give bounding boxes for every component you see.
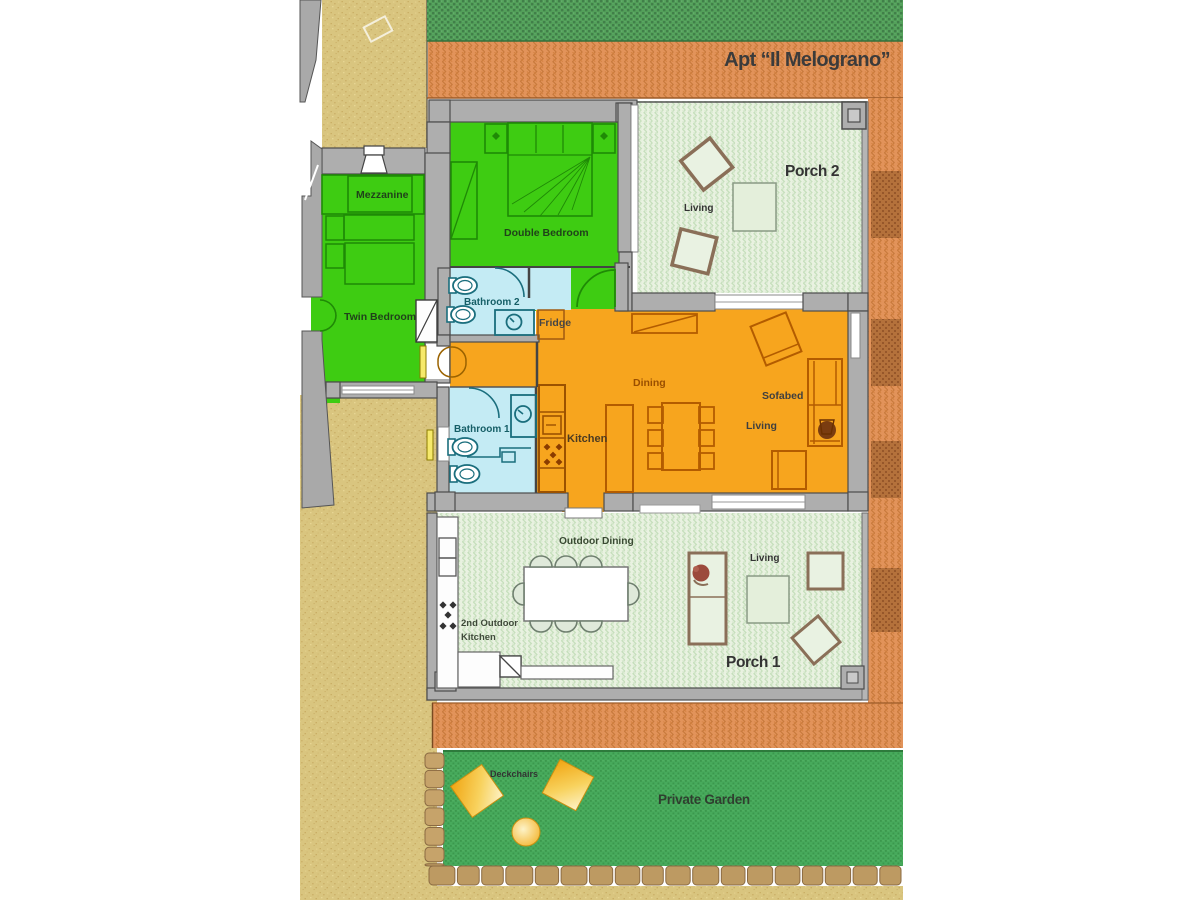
- svg-text:Twin Bedroom: Twin Bedroom: [344, 311, 416, 323]
- svg-text:Apt “Il Melograno”: Apt “Il Melograno”: [724, 49, 890, 71]
- svg-text:Sofabed: Sofabed: [762, 390, 803, 402]
- svg-text:Double Bedroom: Double Bedroom: [504, 227, 589, 239]
- svg-text:Dining: Dining: [633, 377, 666, 389]
- svg-text:Mezzanine: Mezzanine: [356, 189, 409, 201]
- svg-text:2nd Outdoor: 2nd Outdoor: [461, 618, 518, 629]
- svg-text:Living: Living: [750, 553, 779, 564]
- svg-text:Living: Living: [746, 420, 777, 432]
- svg-text:Living: Living: [684, 203, 713, 214]
- svg-text:Fridge: Fridge: [539, 317, 571, 329]
- svg-text:Bathroom 1: Bathroom 1: [454, 424, 510, 435]
- svg-text:Porch 1: Porch 1: [726, 654, 781, 671]
- svg-text:Kitchen: Kitchen: [461, 632, 496, 643]
- svg-text:Private Garden: Private Garden: [658, 792, 750, 807]
- svg-text:Deckchairs: Deckchairs: [490, 769, 538, 779]
- svg-text:Bathroom 2: Bathroom 2: [464, 297, 520, 308]
- svg-text:Outdoor Dining: Outdoor Dining: [559, 536, 634, 547]
- svg-text:Kitchen: Kitchen: [567, 433, 608, 445]
- svg-text:Porch 2: Porch 2: [785, 163, 839, 180]
